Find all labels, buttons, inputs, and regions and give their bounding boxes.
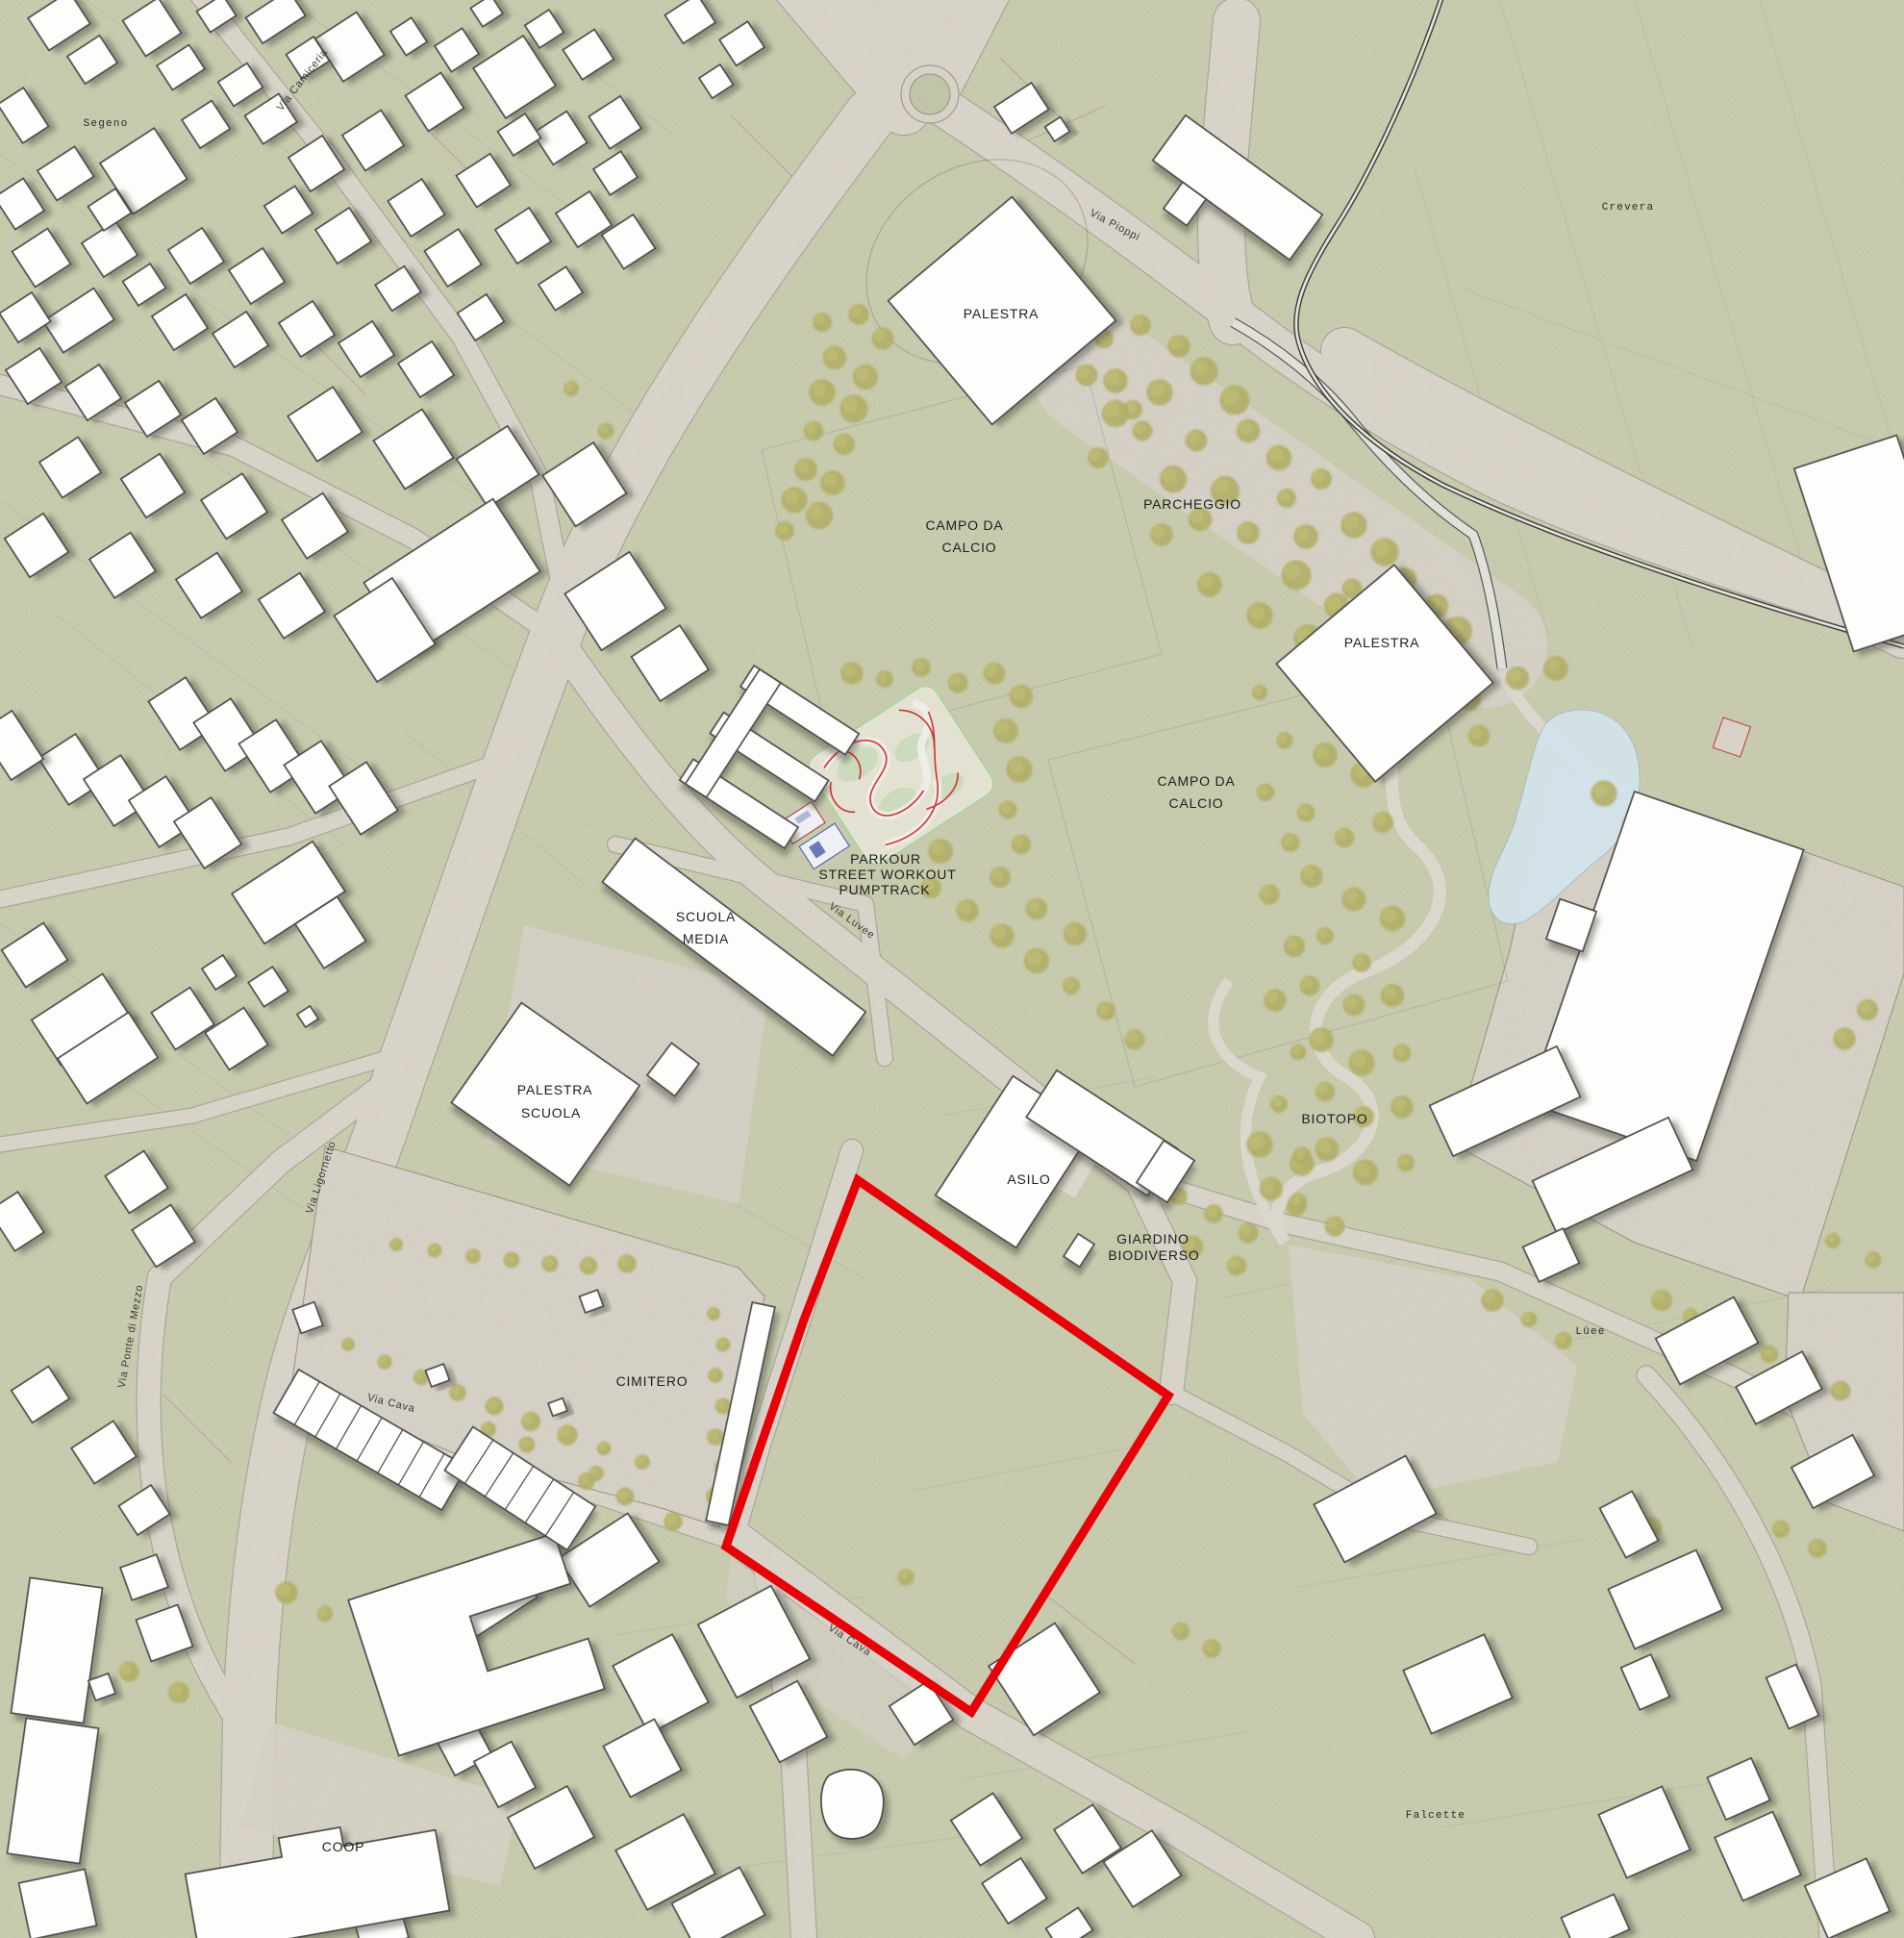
svg-text:PALESTRA: PALESTRA — [1344, 635, 1420, 650]
svg-text:Crevera: Crevera — [1602, 202, 1655, 214]
svg-text:STREET WORKOUT: STREET WORKOUT — [818, 867, 956, 882]
svg-text:Falcette: Falcette — [1406, 1810, 1466, 1822]
svg-text:ASILO: ASILO — [1007, 1171, 1050, 1187]
svg-text:PARKOUR: PARKOUR — [850, 851, 921, 867]
svg-text:SCUOLA: SCUOLA — [676, 909, 736, 924]
svg-text:PALESTRA: PALESTRA — [517, 1082, 593, 1097]
svg-text:SCUOLA: SCUOLA — [521, 1105, 581, 1120]
svg-text:Lüee: Lüee — [1575, 1326, 1605, 1338]
svg-text:COOP: COOP — [322, 1839, 364, 1854]
svg-text:BIOTOPO: BIOTOPO — [1301, 1111, 1367, 1126]
svg-text:PARCHEGGIO: PARCHEGGIO — [1143, 496, 1241, 512]
svg-text:PALESTRA: PALESTRA — [964, 306, 1040, 321]
svg-text:CAMPO DA: CAMPO DA — [925, 517, 1003, 533]
svg-text:BIODIVERSO: BIODIVERSO — [1108, 1247, 1199, 1263]
svg-text:Segeno: Segeno — [84, 118, 129, 130]
svg-text:CALCIO: CALCIO — [1169, 795, 1224, 811]
svg-text:MEDIA: MEDIA — [683, 931, 729, 946]
svg-text:CIMITERO: CIMITERO — [616, 1373, 689, 1389]
svg-text:CALCIO: CALCIO — [942, 540, 997, 555]
svg-text:GIARDINO: GIARDINO — [1116, 1231, 1190, 1246]
svg-text:PUMPTRACK: PUMPTRACK — [839, 882, 930, 897]
svg-text:CAMPO DA: CAMPO DA — [1157, 773, 1235, 789]
